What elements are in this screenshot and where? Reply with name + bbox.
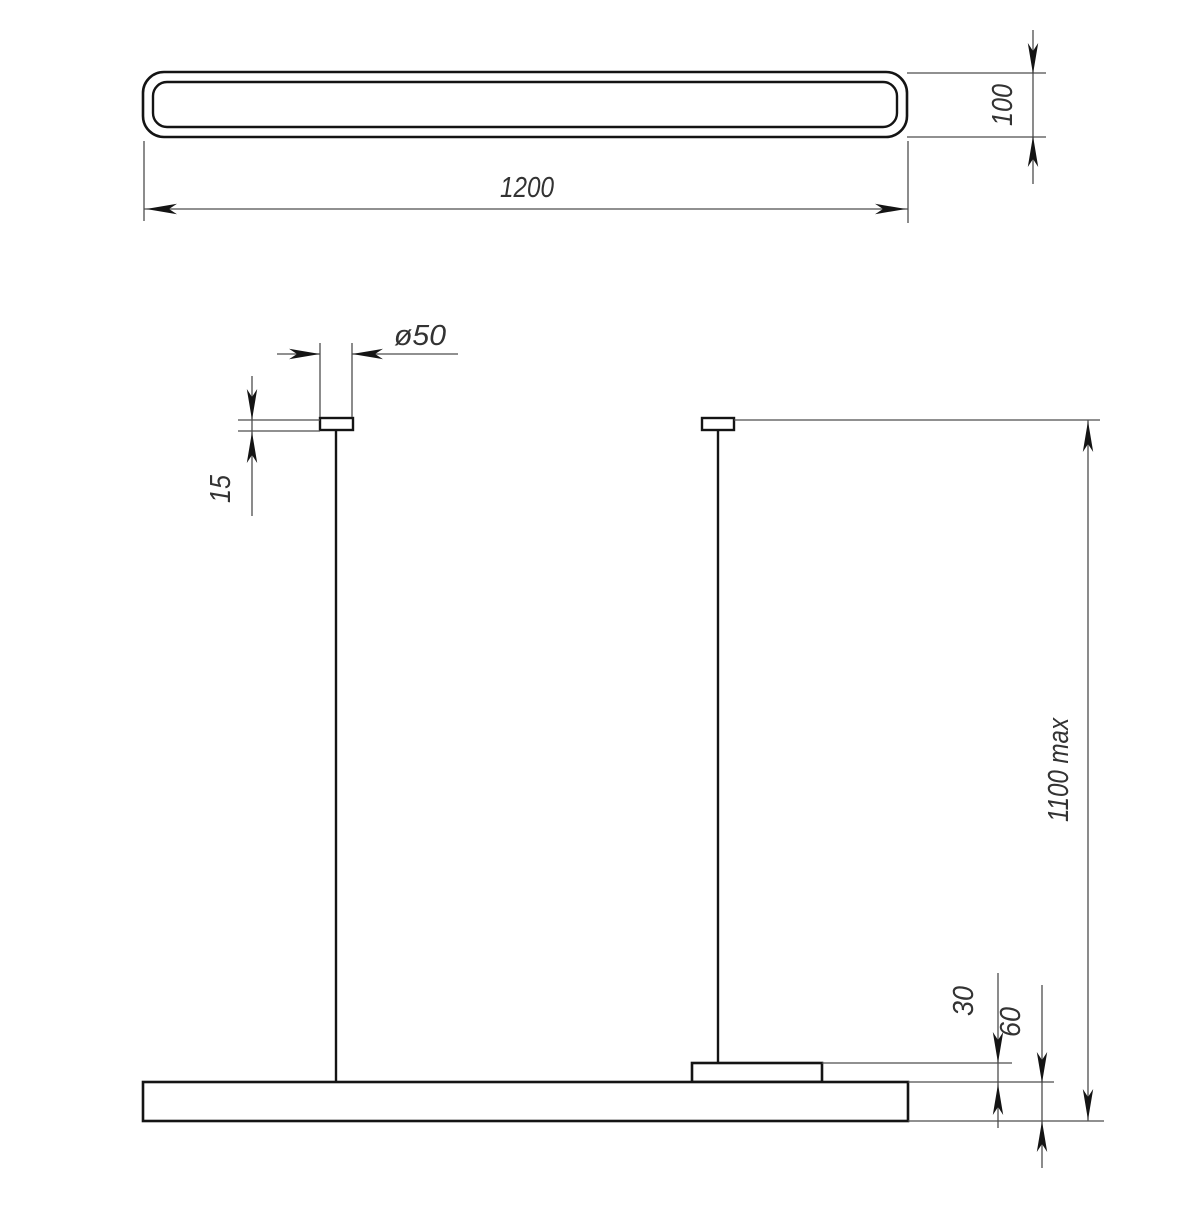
- dim-label-suspension-max: 1100 max: [1043, 717, 1075, 822]
- lamp-plan-view: [143, 72, 907, 137]
- mounting-bracket: [692, 1063, 822, 1082]
- ceiling-canopy-left: [320, 418, 353, 430]
- ceiling-canopy-right: [702, 418, 734, 430]
- dim-label-bracket-height: 30: [948, 986, 980, 1016]
- dim-depth: [907, 30, 1046, 184]
- technical-drawing-page: 1200 100 ø50: [0, 0, 1200, 1200]
- pendant-lamp-dimension-drawing: 1200 100 ø50: [0, 0, 1200, 1200]
- lamp-front-elevation: [143, 418, 908, 1121]
- dim-label-body-height: 60: [995, 1007, 1027, 1037]
- dim-label-canopy-height: 15: [205, 474, 237, 503]
- dim-label-length: 1200: [500, 172, 554, 204]
- lamp-inner-outline: [153, 82, 897, 127]
- lamp-body: [143, 1082, 908, 1121]
- dim-label-depth: 100: [987, 84, 1019, 126]
- dim-label-canopy-diameter: ø50: [394, 320, 446, 352]
